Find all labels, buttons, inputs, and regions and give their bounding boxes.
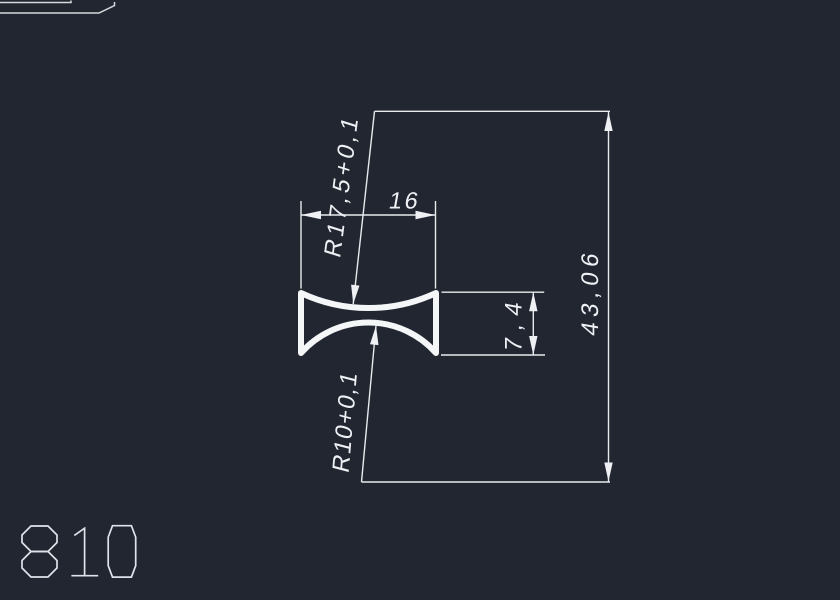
svg-text:43,06: 43,06 [577, 251, 604, 338]
svg-text:7,4: 7,4 [501, 300, 528, 354]
svg-text:16: 16 [387, 189, 423, 215]
